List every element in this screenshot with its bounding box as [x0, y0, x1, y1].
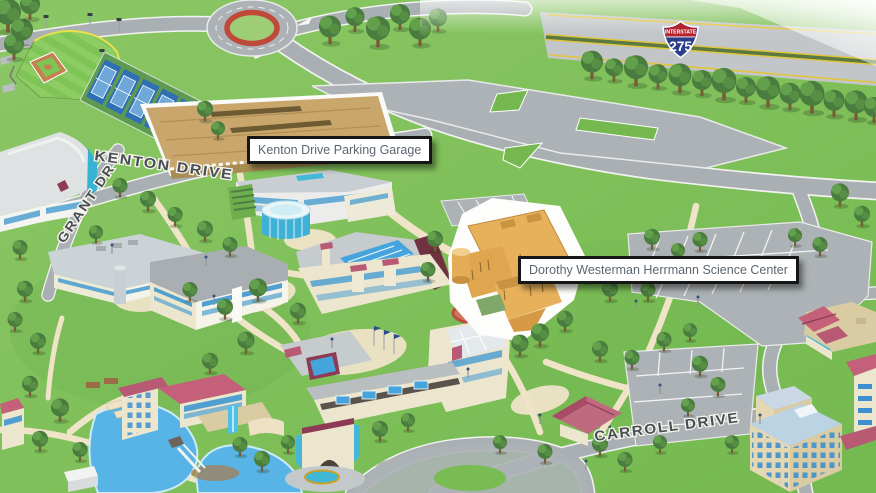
fountain: [305, 471, 339, 484]
science-center-label[interactable]: Dorothy Westerman Herrmann Science Cente…: [518, 256, 799, 284]
parking-garage-label[interactable]: Kenton Drive Parking Garage: [247, 136, 432, 164]
shield-interstate-text: INTERSTATE: [665, 30, 697, 36]
southwest-building[interactable]: [0, 398, 24, 450]
campus-map-canvas: KENTON DRIVE GRANT DR CARROLL DRIVE INTE…: [0, 0, 876, 493]
campus-map: KENTON DRIVE GRANT DR CARROLL DRIVE INTE…: [0, 0, 876, 493]
pitchers-mound: [44, 64, 52, 69]
shield-number-text: 275: [669, 39, 692, 54]
lake-shallows: [191, 465, 239, 481]
loop-island: [434, 465, 506, 491]
roundabout: [207, 0, 297, 56]
